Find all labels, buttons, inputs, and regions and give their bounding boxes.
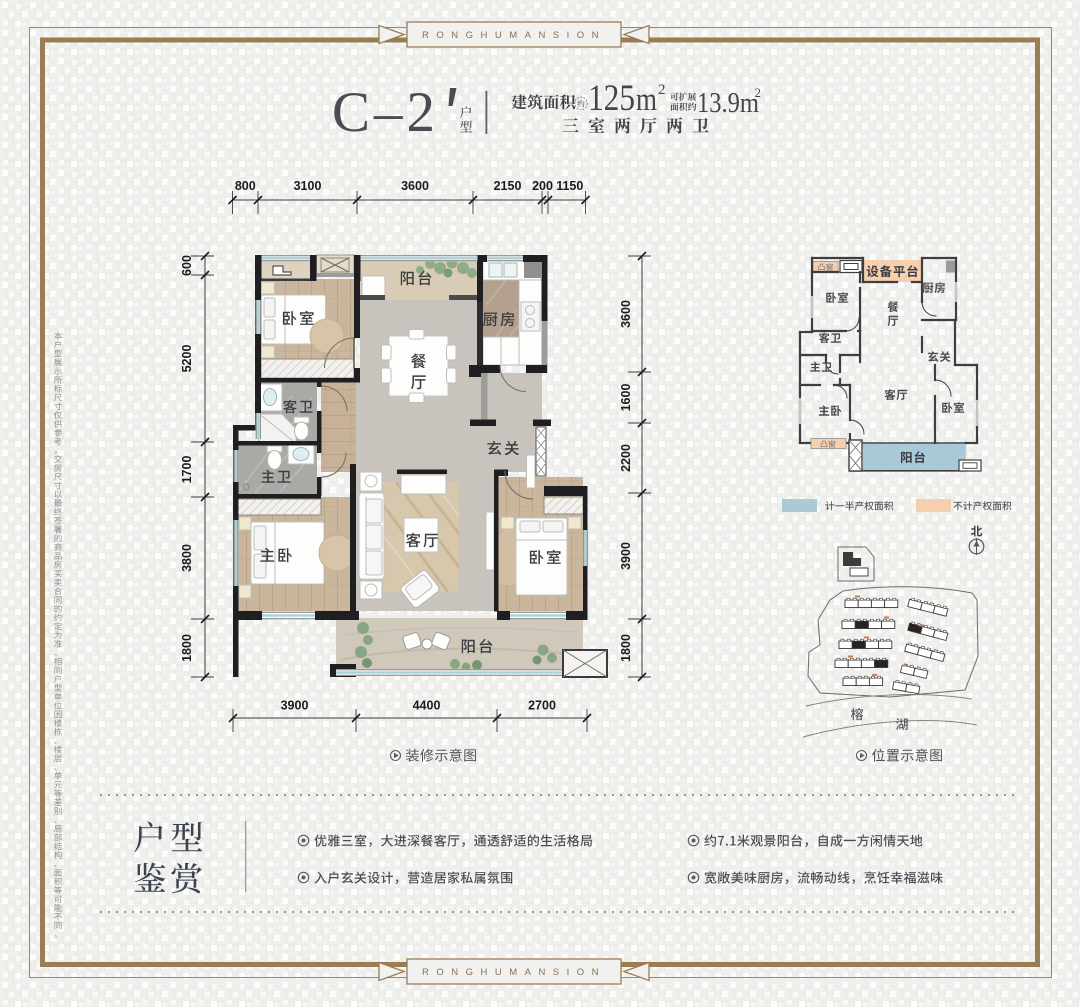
svg-text:5200: 5200	[180, 345, 194, 373]
svg-text:1700: 1700	[180, 456, 194, 484]
svg-text:3100: 3100	[294, 179, 322, 193]
svg-text:1150: 1150	[556, 179, 583, 193]
svg-text:3600: 3600	[401, 179, 429, 193]
svg-text:m: m	[636, 82, 657, 118]
svg-text:200: 200	[532, 179, 553, 193]
svg-text:RONGHUMANSION: RONGHUMANSION	[422, 30, 606, 41]
svg-text:2150: 2150	[494, 179, 522, 193]
svg-text:C–2: C–2	[332, 81, 439, 144]
svg-text:4400: 4400	[413, 699, 441, 713]
svg-text:1800: 1800	[180, 634, 194, 662]
svg-text:3900: 3900	[281, 699, 309, 713]
svg-text:2: 2	[755, 85, 762, 100]
svg-text:13.9m: 13.9m	[697, 87, 759, 119]
svg-text:1800: 1800	[619, 634, 633, 662]
svg-text:2200: 2200	[619, 444, 633, 472]
svg-text:3600: 3600	[619, 300, 633, 328]
svg-text:RONGHUMANSION: RONGHUMANSION	[422, 967, 606, 978]
svg-text:3900: 3900	[619, 542, 633, 570]
svg-text:125: 125	[588, 78, 635, 119]
svg-text:2700: 2700	[528, 699, 556, 713]
svg-text:600: 600	[180, 255, 194, 276]
svg-text:3800: 3800	[180, 544, 194, 572]
svg-text:800: 800	[235, 179, 256, 193]
svg-text:1600: 1600	[619, 384, 633, 412]
svg-text:2: 2	[658, 82, 666, 98]
